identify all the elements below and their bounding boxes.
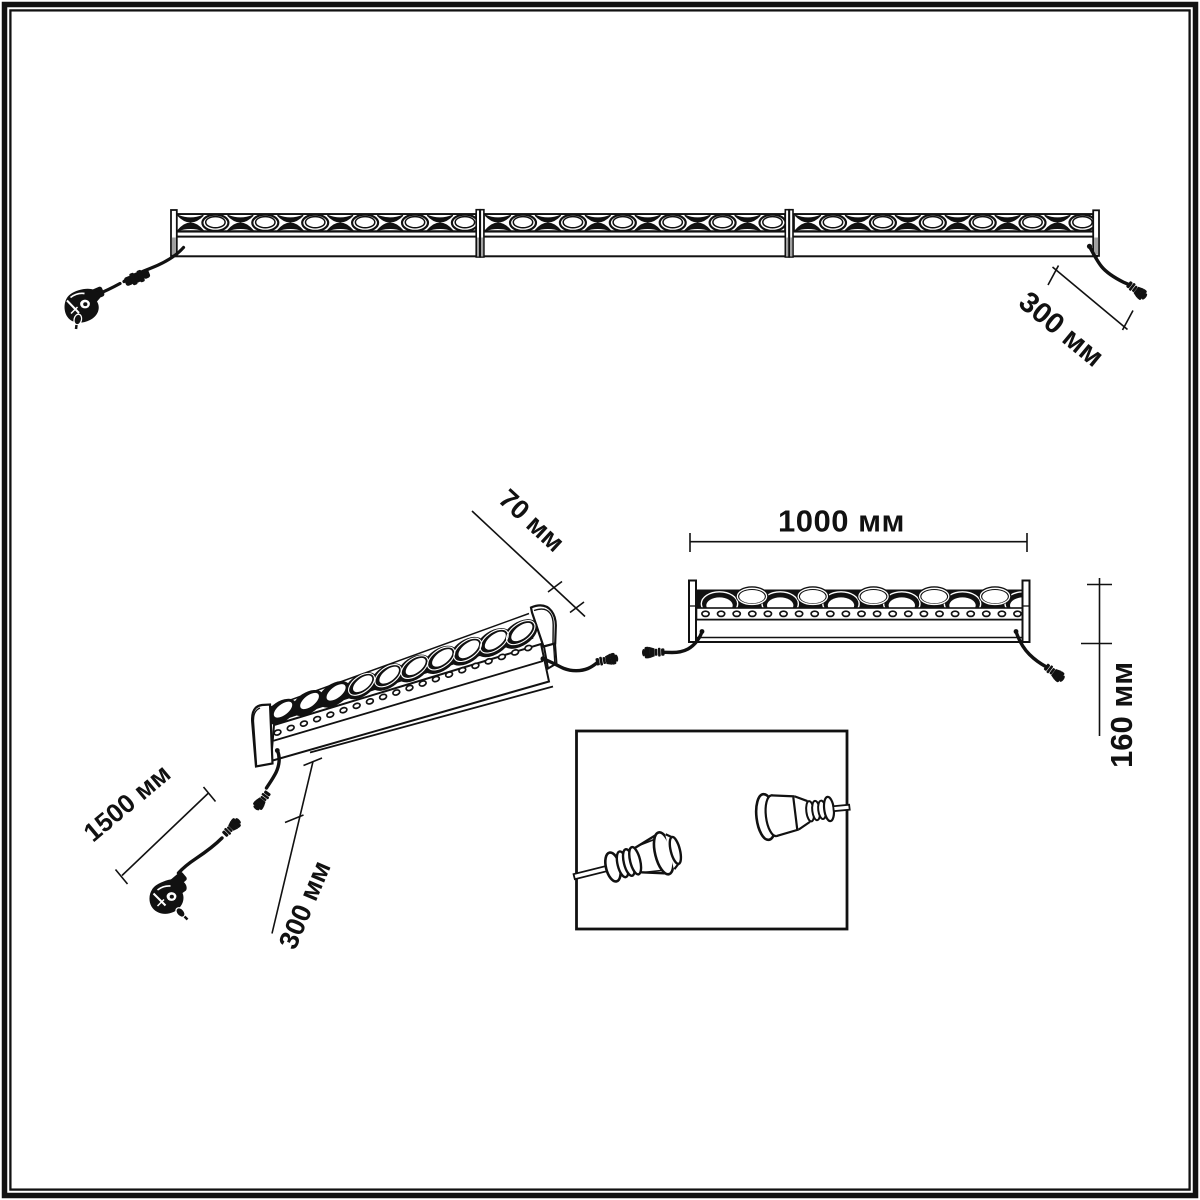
svg-text:1000 мм: 1000 мм	[778, 504, 905, 539]
svg-text:160 мм: 160 мм	[1104, 662, 1139, 768]
